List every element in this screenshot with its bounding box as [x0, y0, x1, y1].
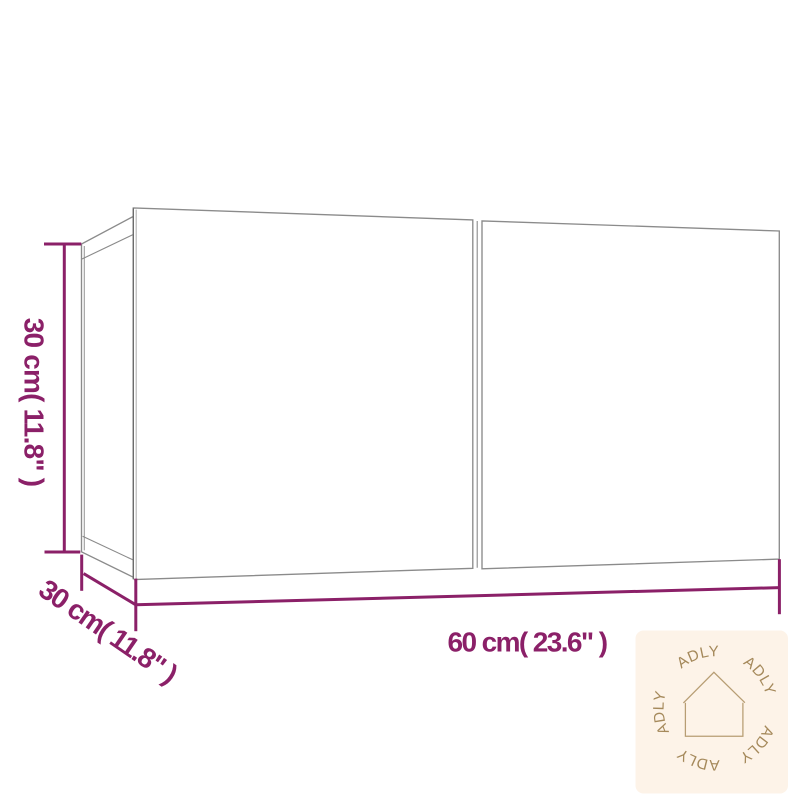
svg-text:30 cm( 11.8" ): 30 cm( 11.8" )	[19, 318, 50, 487]
svg-text:30 cm( 11.8" ): 30 cm( 11.8" )	[33, 573, 182, 689]
svg-text:60 cm( 23.6" ): 60 cm( 23.6" )	[448, 627, 607, 658]
